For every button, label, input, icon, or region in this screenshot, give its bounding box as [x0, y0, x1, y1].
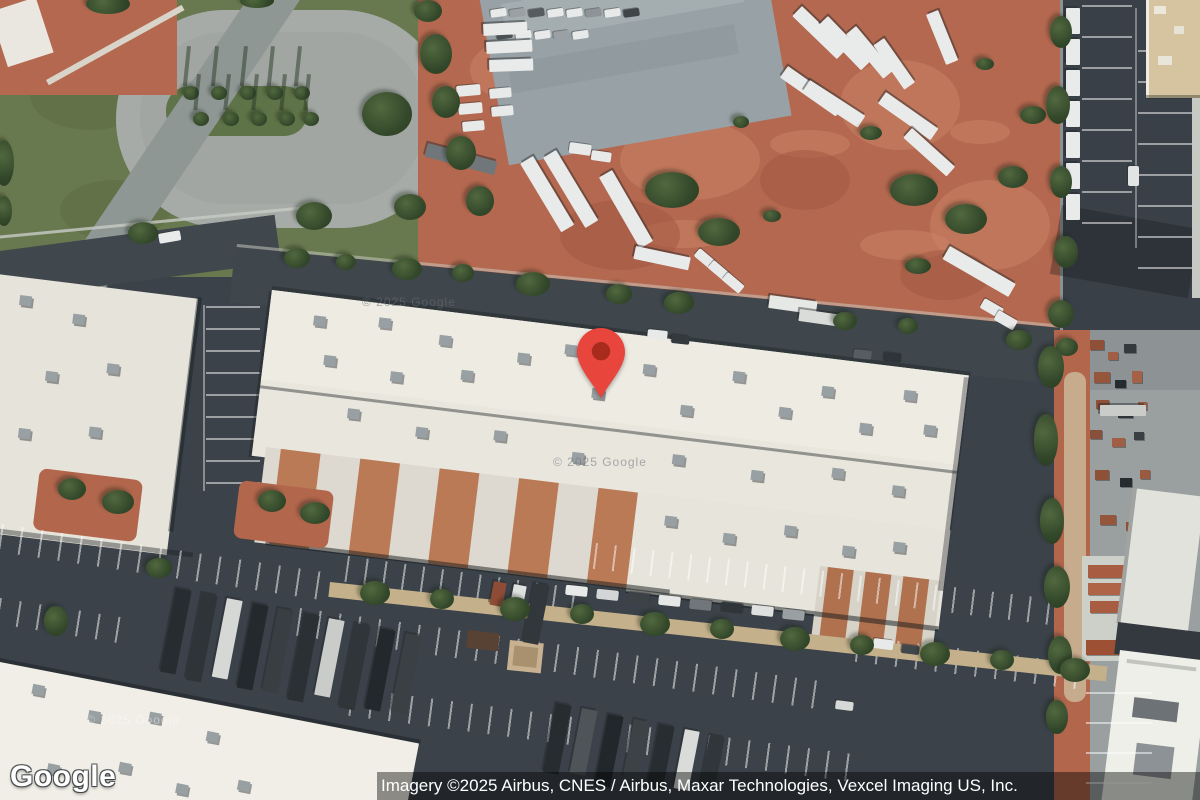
tree: [44, 606, 68, 636]
vehicle: [782, 608, 805, 620]
tree: [300, 502, 330, 524]
tree: [1038, 346, 1064, 388]
trailer: [483, 22, 528, 36]
tree: [1046, 700, 1068, 734]
rooftop-unit: [439, 335, 452, 346]
rooftop-unit: [517, 352, 530, 363]
terrain-region: [1126, 659, 1196, 672]
imagery-attribution-bar: Imagery ©2025 Airbus, CNES / Airbus, Max…: [377, 772, 1200, 800]
tree: [850, 635, 874, 655]
tree: [284, 248, 310, 268]
tree: [1044, 566, 1070, 608]
google-logo[interactable]: Google: [10, 760, 116, 794]
rooftop-unit: [206, 731, 220, 743]
rooftop-unit: [784, 525, 797, 536]
rooftop-unit: [378, 317, 391, 328]
rooftop-unit: [859, 423, 872, 434]
tree: [392, 258, 422, 280]
vehicle: [1128, 166, 1139, 186]
rooftop-unit: [680, 405, 693, 416]
trailer: [1066, 194, 1080, 220]
rooftop-unit: [564, 344, 577, 355]
rooftop-unit: [493, 430, 506, 441]
terrain-region: [1174, 26, 1184, 34]
pallet-stack: [1132, 371, 1142, 383]
rooftop-unit: [18, 428, 31, 439]
satellite-map-viewport[interactable]: © 2025 Google © 2025 Google © 2025 Googl…: [0, 0, 1200, 800]
rooftop-unit: [460, 370, 473, 381]
rooftop-unit: [72, 314, 85, 325]
tree: [128, 222, 158, 244]
tree: [890, 174, 938, 206]
building-roof: [1146, 0, 1200, 98]
tree: [500, 597, 530, 621]
rooftop-unit: [672, 454, 685, 465]
rooftop-unit: [106, 363, 119, 374]
rooftop-unit: [722, 533, 735, 544]
tree: [303, 112, 319, 126]
terrain-region: [512, 645, 538, 667]
vehicle: [458, 102, 483, 115]
trailer: [1066, 132, 1080, 158]
pallet-stack: [1094, 372, 1110, 383]
terrain-region: [428, 468, 479, 568]
lane-line: [1135, 8, 1137, 248]
pallet-stack: [1090, 430, 1102, 439]
rooftop-unit: [893, 542, 906, 553]
pallet-stack: [1112, 438, 1125, 447]
trailer: [1100, 405, 1146, 416]
tree: [394, 194, 426, 220]
rooftop-unit: [89, 426, 102, 437]
curb: [203, 305, 205, 491]
tree: [446, 136, 476, 170]
terrain-region: [1154, 6, 1166, 14]
tree: [664, 292, 694, 314]
rooftop-unit: [664, 516, 677, 527]
tree: [990, 650, 1014, 670]
dirt-patch: [760, 150, 850, 210]
tree: [733, 116, 749, 128]
tree: [258, 490, 286, 512]
rooftop-unit: [31, 684, 45, 696]
tree: [430, 589, 454, 609]
tree: [1050, 16, 1072, 48]
terrain-region: [1158, 56, 1172, 65]
terrain-region: [1146, 0, 1149, 98]
pallet-stack: [1100, 515, 1116, 525]
tree: [102, 490, 134, 514]
rooftop-unit: [892, 485, 905, 496]
tree: [296, 202, 332, 230]
trailer: [486, 40, 533, 54]
tree: [945, 204, 987, 234]
tree: [1048, 300, 1074, 328]
rooftop-unit: [732, 371, 745, 382]
tree: [1046, 86, 1070, 124]
tree: [1034, 414, 1058, 466]
rooftop-unit: [118, 762, 132, 774]
tree: [645, 172, 699, 208]
rooftop-unit: [148, 712, 162, 724]
rooftop-unit: [323, 355, 336, 366]
parking-lines: [206, 306, 260, 491]
pallet-stack: [1124, 344, 1136, 353]
vehicle: [883, 352, 902, 363]
pallet-stack: [1108, 352, 1118, 360]
tree: [193, 112, 209, 126]
tree: [466, 186, 494, 216]
pallet-stack: [1140, 470, 1150, 479]
pallet-stack: [1134, 432, 1144, 440]
tree: [640, 612, 670, 636]
rooftop-unit: [347, 408, 360, 419]
rooftop-unit: [903, 390, 916, 401]
vehicle: [720, 602, 743, 614]
rooftop-unit: [842, 545, 855, 556]
rooftop-unit: [313, 315, 326, 326]
rooftop-unit: [45, 371, 58, 382]
tree: [420, 34, 452, 74]
tree: [606, 284, 632, 304]
tree: [362, 92, 412, 136]
tree: [898, 318, 918, 334]
rooftop-unit: [390, 371, 403, 382]
rooftop-unit: [87, 710, 101, 722]
pallet-stack: [1090, 340, 1104, 350]
attribution-text: Imagery ©2025 Airbus, CNES / Airbus, Max…: [381, 776, 1018, 795]
vehicle: [627, 592, 650, 604]
tree: [251, 112, 267, 126]
vehicle: [462, 120, 485, 132]
trailer: [1066, 70, 1080, 96]
tree: [905, 258, 931, 274]
tree: [336, 254, 356, 270]
terrain-region: [507, 478, 558, 578]
trash-enclosure: [507, 640, 544, 673]
tree: [432, 86, 460, 118]
pallet-stack: [1120, 478, 1132, 487]
rooftop-unit: [923, 425, 936, 436]
rooftop-unit: [750, 470, 763, 481]
tree: [146, 558, 172, 578]
rooftop-unit: [175, 783, 189, 795]
rooftop-unit: [19, 295, 32, 306]
tree: [1050, 166, 1072, 198]
tree: [1040, 498, 1064, 544]
rooftop-unit: [778, 407, 791, 418]
tree: [223, 112, 239, 126]
tree: [1020, 106, 1046, 124]
tree: [1054, 236, 1078, 268]
pallet-stack: [1095, 470, 1109, 480]
rooftop-unit: [237, 780, 251, 792]
tree: [833, 312, 857, 330]
tree: [860, 126, 882, 140]
dumpster: [466, 630, 500, 651]
tree: [58, 478, 86, 500]
tree: [452, 264, 474, 282]
vehicle: [456, 84, 481, 97]
tree: [414, 0, 442, 22]
tree: [279, 112, 295, 126]
parking-lines: [1082, 5, 1132, 240]
vehicle: [647, 329, 668, 340]
tree: [698, 218, 740, 246]
tree: [1006, 330, 1032, 350]
tree: [998, 166, 1028, 188]
wall: [1192, 98, 1200, 298]
terrain-region: [349, 459, 400, 559]
tree: [1060, 658, 1090, 682]
rooftop-unit: [571, 452, 584, 463]
rooftop-unit: [415, 427, 428, 438]
trailer: [489, 58, 533, 72]
vehicle: [689, 598, 712, 610]
dirt-patch: [950, 120, 1010, 144]
tree: [516, 272, 550, 296]
vehicle: [671, 334, 690, 345]
vehicle: [596, 588, 619, 600]
location-pin-icon[interactable]: [577, 328, 625, 400]
rooftop-unit: [821, 386, 834, 397]
tree: [780, 627, 810, 651]
tree: [976, 58, 994, 70]
vehicle: [489, 87, 512, 99]
pallet-stack: [1115, 380, 1126, 388]
rooftop-unit: [643, 364, 656, 375]
vehicle: [853, 349, 872, 360]
rooftop-unit: [831, 468, 844, 479]
tree: [763, 210, 781, 222]
vehicle: [491, 105, 514, 117]
